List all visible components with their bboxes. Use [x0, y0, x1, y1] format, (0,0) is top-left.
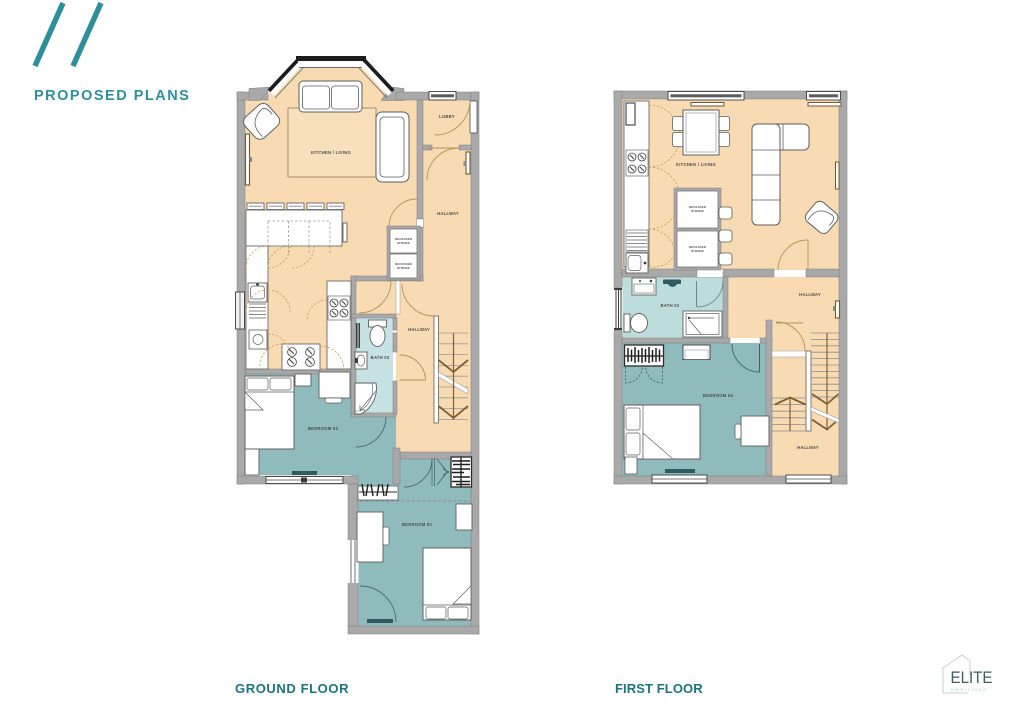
- svg-text:HALLWAY: HALLWAY: [797, 445, 819, 450]
- svg-text:DWELLINGS: DWELLINGS: [951, 687, 987, 692]
- svg-text:HALLWAY: HALLWAY: [799, 292, 821, 297]
- svg-text:KITCHEN / LIVING: KITCHEN / LIVING: [676, 162, 716, 167]
- svg-text:LOBBY: LOBBY: [439, 114, 455, 119]
- svg-text:W'ROBE: W'ROBE: [397, 266, 410, 270]
- svg-text:BEDROOM 04: BEDROOM 04: [703, 393, 734, 398]
- svg-text:BEDROOM 03: BEDROOM 03: [308, 426, 339, 431]
- svg-text:BATH 02: BATH 02: [661, 303, 680, 308]
- svg-text:PROPOSED PLANS: PROPOSED PLANS: [34, 88, 190, 104]
- svg-text:W'ROBE: W'ROBE: [691, 209, 704, 213]
- svg-text:ELITE: ELITE: [951, 668, 993, 687]
- svg-text:GROUND FLOOR: GROUND FLOOR: [235, 681, 349, 696]
- svg-text:W'ROBE: W'ROBE: [691, 249, 704, 253]
- svg-text:BATH 03: BATH 03: [371, 355, 390, 360]
- svg-text:HALLWAY: HALLWAY: [437, 211, 459, 216]
- svg-text:W'ROBE: W'ROBE: [397, 241, 410, 245]
- svg-text:HALLWAY: HALLWAY: [408, 327, 430, 332]
- svg-text:KITCHEN / LIVING: KITCHEN / LIVING: [311, 150, 351, 155]
- svg-text:FIRST FLOOR: FIRST FLOOR: [615, 681, 703, 696]
- svg-text:BEDROOM 02: BEDROOM 02: [402, 522, 433, 527]
